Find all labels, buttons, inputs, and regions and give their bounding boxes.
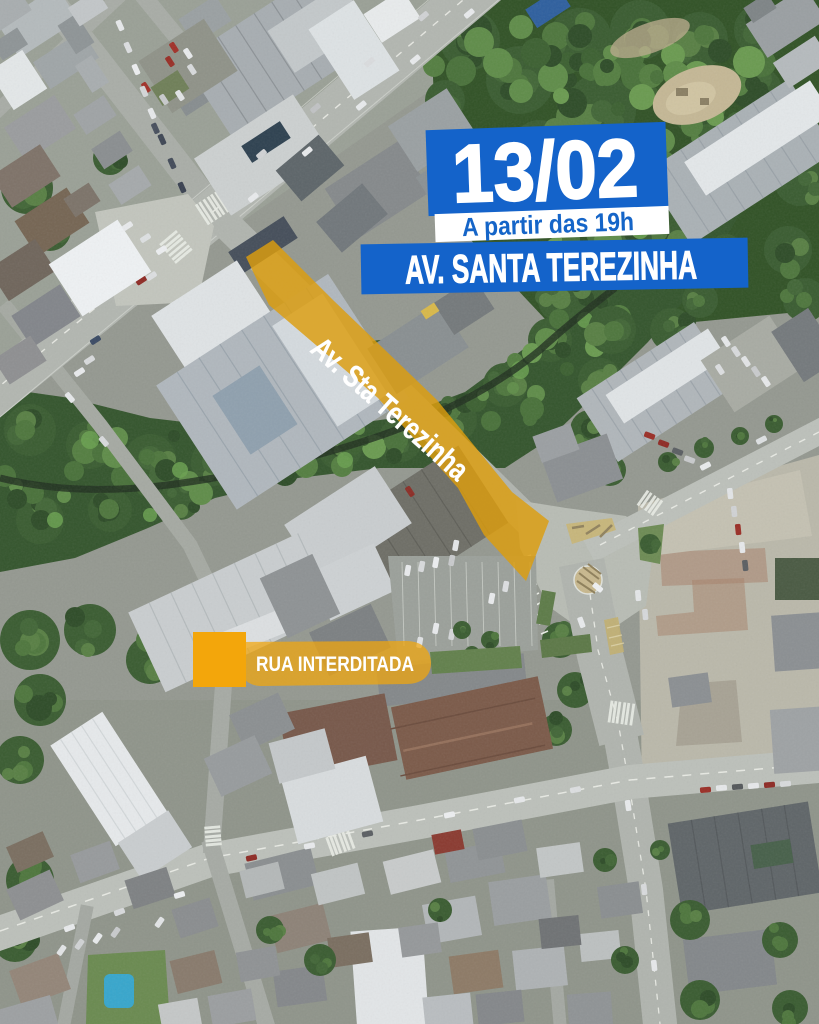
svg-text:13/02: 13/02 <box>451 123 640 220</box>
svg-text:RUA INTERDITADA: RUA INTERDITADA <box>256 653 414 676</box>
svg-text:AV. SANTA TEREZINHA: AV. SANTA TEREZINHA <box>405 244 698 293</box>
svg-text:A partir das 19h: A partir das 19h <box>462 206 635 242</box>
